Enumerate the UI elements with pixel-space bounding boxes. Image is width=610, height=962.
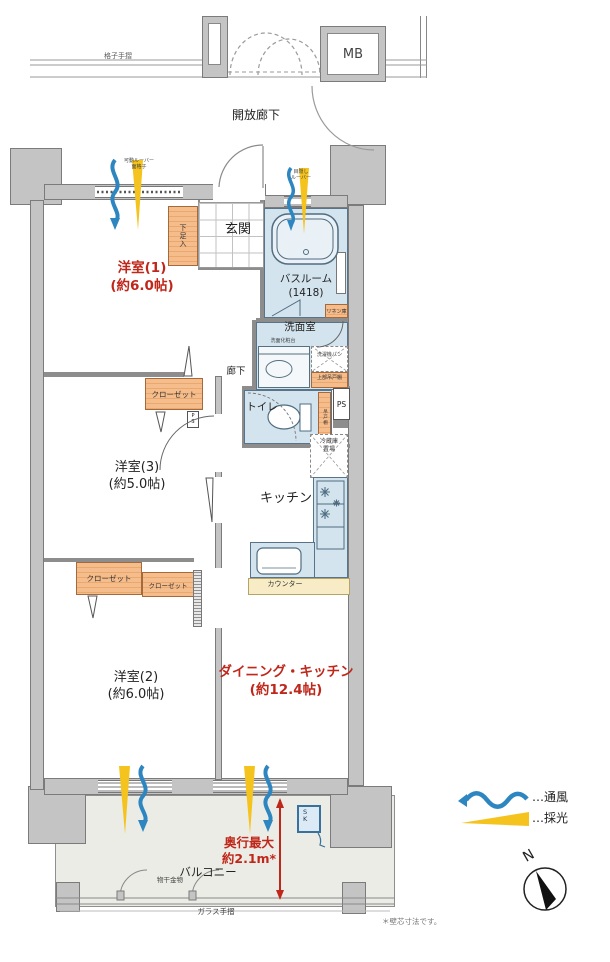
bedroom-window-note: 可動ルーバー 面格子 bbox=[114, 159, 164, 170]
toilet-label: トイレ bbox=[244, 401, 280, 414]
dining-kitchen-size: (約12.4帖) bbox=[212, 682, 360, 700]
bathroom-label: バスルーム (1418) bbox=[268, 272, 344, 300]
meter-box: MB bbox=[320, 26, 386, 82]
floor-plan-canvas: 下足入 リネン庫 吊戸棚 PS クローゼット PS クローゼット クローゼット … bbox=[0, 0, 610, 962]
entrance-label: 玄関 bbox=[210, 222, 266, 238]
compass-north-label: N bbox=[515, 844, 542, 870]
sliding-door-western2 bbox=[193, 570, 202, 627]
closet-western3-label: クローゼット bbox=[152, 389, 197, 400]
compass bbox=[524, 868, 566, 910]
fridge-label: 冷蔵庫 置場 bbox=[310, 438, 348, 455]
bedroom-window-note-line2: 面格子 bbox=[114, 165, 164, 171]
vanity-unit bbox=[258, 346, 310, 388]
pipe-space-small-label: PS bbox=[190, 414, 196, 425]
upper-cabinet-label: 上部吊戸棚 bbox=[311, 375, 348, 381]
fridge-label-line2: 置場 bbox=[310, 446, 348, 454]
shoe-cabinet: 下足入 bbox=[168, 206, 198, 266]
closet-western2-left-label: クローゼット bbox=[87, 573, 132, 584]
western2-size: (約6.0帖) bbox=[80, 687, 192, 704]
pipe-space-box: PS bbox=[333, 388, 350, 420]
western2-name: 洋室(2) bbox=[80, 670, 192, 687]
window-western1-top bbox=[95, 186, 183, 198]
wall-western1-south bbox=[44, 372, 184, 377]
corridor-door-frame bbox=[202, 16, 228, 78]
opening-western3-door bbox=[214, 414, 223, 472]
bathroom-name: バスルーム bbox=[268, 272, 344, 286]
dining-kitchen-label: ダイニング・キッチン (約12.4帖) bbox=[212, 664, 360, 699]
bathroom-size: (1418) bbox=[268, 286, 344, 300]
pillar-bottom-right bbox=[330, 786, 392, 848]
legend-light-arrow bbox=[461, 812, 529, 826]
depth-label-line2: 約2.1m* bbox=[219, 851, 279, 867]
linen-cabinet: リネン庫 bbox=[325, 304, 348, 318]
washer-pan bbox=[311, 346, 348, 372]
meter-box-inner: MB bbox=[327, 33, 379, 75]
pipe-space-small: PS bbox=[187, 411, 199, 428]
footnote: ＊壁芯寸法です。 bbox=[382, 917, 492, 926]
wall-ps-south bbox=[333, 420, 348, 428]
handrail-label: 格子手摺 bbox=[96, 52, 140, 60]
bath-window-note: 目隠し ルーバー bbox=[281, 170, 321, 181]
depth-label-line1: 奥行最大 bbox=[219, 835, 279, 851]
genkan-step-line bbox=[198, 268, 266, 270]
western1-size: (約6.0帖) bbox=[84, 278, 200, 296]
opening-dk-door bbox=[214, 477, 223, 523]
closet-western2-left: クローゼット bbox=[76, 562, 142, 595]
balcony-foot-right bbox=[342, 882, 366, 914]
legend-wind-arrow bbox=[458, 793, 527, 807]
legend-light-label: …採光 bbox=[532, 811, 602, 825]
entrance-door-arc bbox=[219, 145, 263, 188]
western1-door-leaf bbox=[184, 346, 192, 376]
corridor-door-swing-arcs bbox=[230, 33, 320, 75]
balcony-foot-left bbox=[56, 882, 80, 912]
western3-label: 洋室(3) (約5.0帖) bbox=[92, 460, 182, 494]
glass-rail-label: ガラス手摺 bbox=[190, 907, 242, 916]
dining-kitchen-name: ダイニング・キッチン bbox=[212, 664, 360, 682]
corridor-door-frame-inner bbox=[208, 23, 221, 65]
counter-label: カウンター bbox=[260, 580, 310, 588]
opening-western2-slide bbox=[214, 568, 223, 628]
kitchen-label: キッチン bbox=[250, 491, 322, 507]
laundry-fitting-label: 物干金物 bbox=[148, 877, 192, 885]
vanity-label: 洗面化粧台 bbox=[256, 338, 310, 344]
legend-wind-label: …通風 bbox=[532, 790, 602, 804]
western2-label: 洋室(2) (約6.0帖) bbox=[80, 670, 192, 704]
western3-size: (約5.0帖) bbox=[92, 477, 182, 494]
entrance-door-opening bbox=[213, 184, 265, 200]
wall-left bbox=[30, 200, 44, 790]
western1-label: 洋室(1) (約6.0帖) bbox=[84, 260, 200, 295]
window-western2-balcony bbox=[98, 780, 172, 793]
slop-sink-label: SK bbox=[303, 809, 310, 823]
corridor-right-frame bbox=[420, 16, 427, 78]
toilet-shelf-label: 吊戸棚 bbox=[322, 409, 328, 426]
wall-bottom bbox=[44, 778, 348, 795]
meter-box-door-arc bbox=[312, 86, 374, 150]
closet-western3: クローゼット bbox=[145, 378, 203, 410]
pipe-space-label: PS bbox=[337, 400, 346, 409]
washer-pan-label: 洗濯機パン bbox=[311, 352, 348, 358]
depth-label: 奥行最大 約2.1m* bbox=[219, 835, 279, 866]
western3-name: 洋室(3) bbox=[92, 460, 182, 477]
slop-sink: SK bbox=[297, 805, 321, 833]
open-corridor-label: 開放廊下 bbox=[225, 108, 287, 122]
linen-label: リネン庫 bbox=[326, 308, 346, 315]
meter-box-label: MB bbox=[343, 47, 363, 62]
window-dk-balcony bbox=[213, 780, 287, 793]
shoe-cabinet-label: 下足入 bbox=[178, 224, 188, 248]
kitchen-sink-counter bbox=[250, 542, 315, 578]
washroom-label: 洗面室 bbox=[270, 321, 330, 334]
dk-door-leaf bbox=[206, 478, 213, 522]
hallway-label: 廊下 bbox=[218, 366, 254, 377]
closet-western2-right-label: クローゼット bbox=[149, 580, 188, 590]
western1-name: 洋室(1) bbox=[84, 260, 200, 278]
closet-western2-right: クローゼット bbox=[142, 572, 194, 597]
window-bath-top bbox=[284, 196, 311, 207]
bath-window-note-line2: ルーバー bbox=[281, 176, 321, 182]
